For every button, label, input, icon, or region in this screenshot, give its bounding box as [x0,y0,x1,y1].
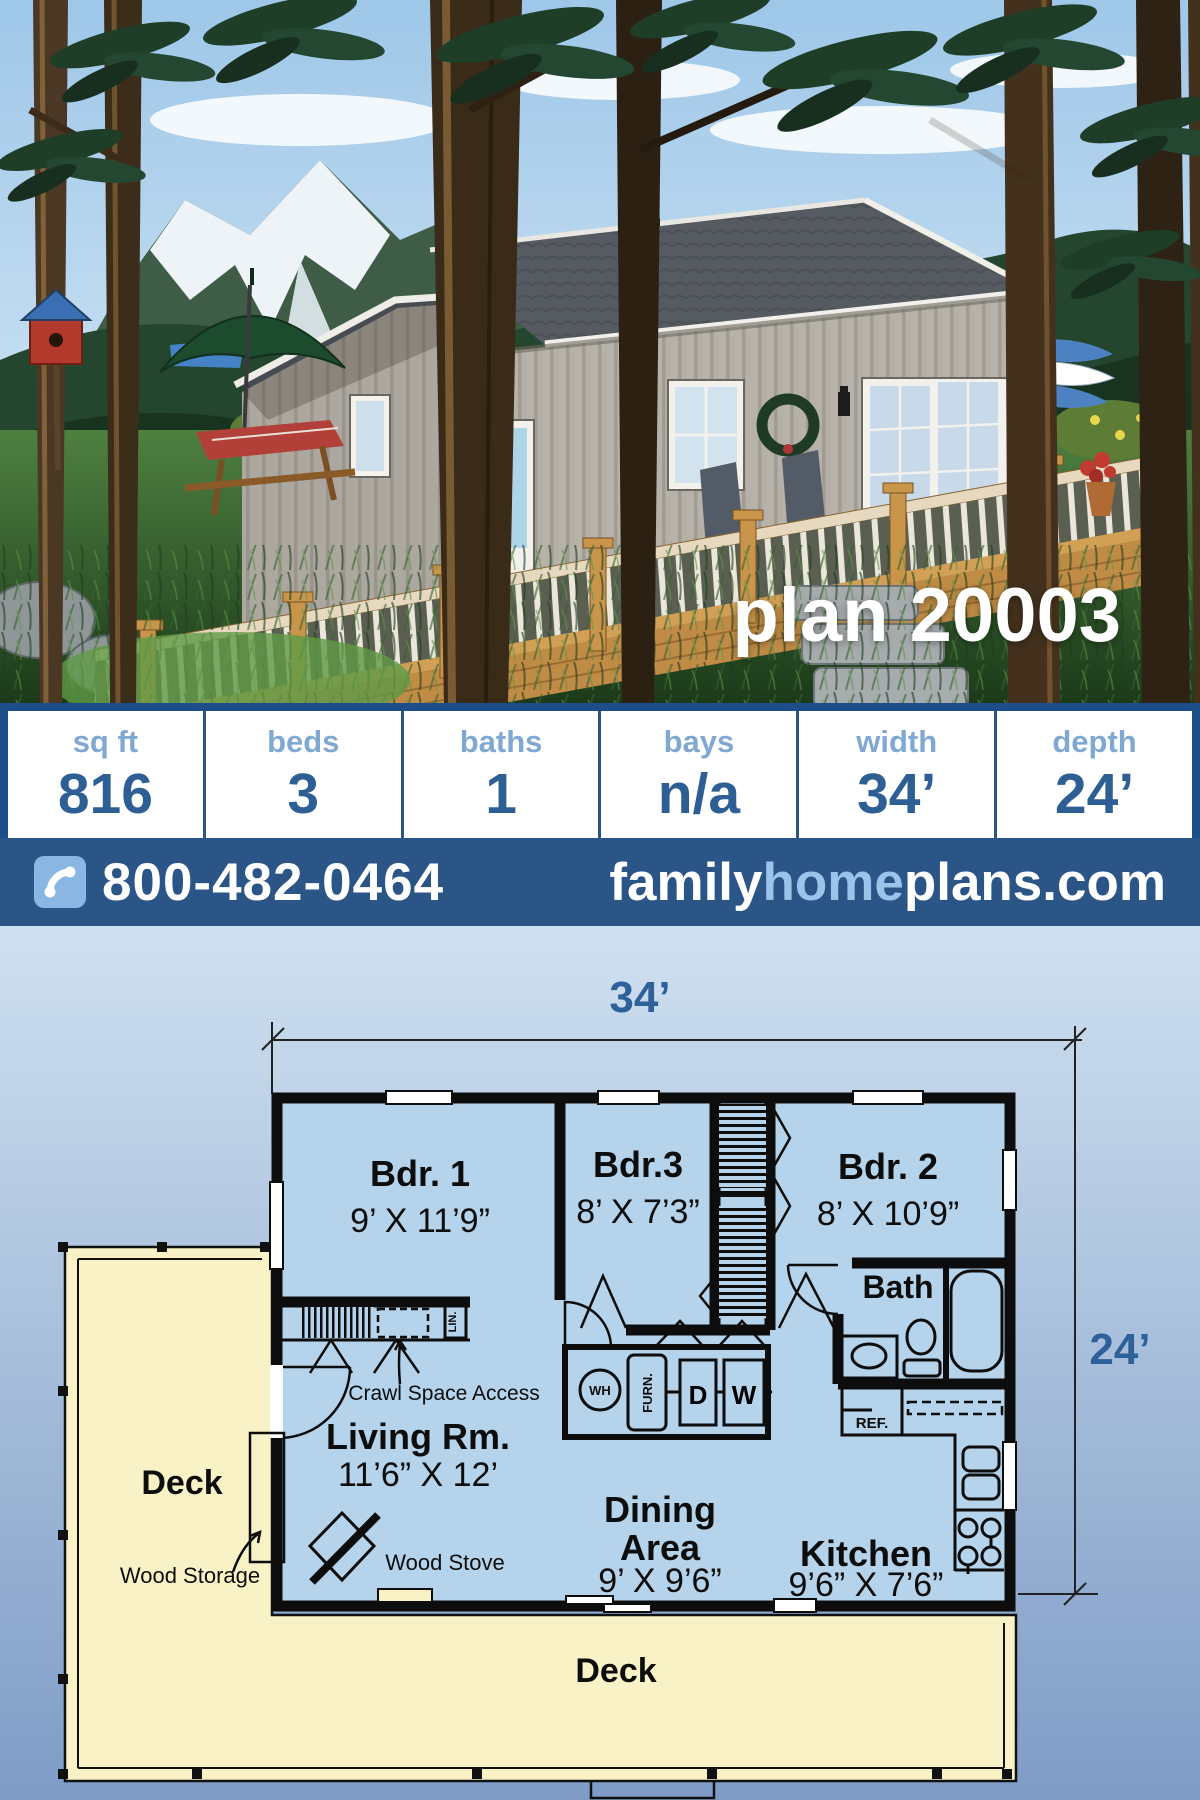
stat-value: 816 [58,766,153,823]
gable-window [350,395,390,477]
contact-bar: 800-482-0464 familyhomeplans.com [0,838,1200,926]
stat-width: width 34’ [799,711,997,838]
water-heater-label: WH [589,1383,611,1398]
stat-value: n/a [658,766,740,823]
dryer-label: D [689,1380,708,1410]
bdr3-size: 8’ X 7’3” [576,1193,699,1231]
stat-label: bays [664,726,735,757]
house-plan-pin: plan 20003 sq ft 816 beds 3 baths 1 bays… [0,0,1200,1800]
phone-block[interactable]: 800-482-0464 [34,856,444,909]
living-size: 11’6” X 12’ [338,1456,498,1494]
floor-plan-drawing: 34’ 24’ [0,926,1200,1800]
wood-storage-label: Wood Storage [120,1563,260,1588]
stat-value: 1 [485,766,517,823]
phone-number[interactable]: 800-482-0464 [102,856,444,909]
stat-bays: bays n/a [601,711,799,838]
bdr2-label: Bdr. 2 [838,1146,938,1187]
depth-dimension: 24’ [1089,1325,1150,1374]
stat-label: baths [460,726,543,757]
linen-label: LIN. [447,1312,459,1333]
furnace-label: FURN. [640,1373,655,1413]
stat-beds: beds 3 [206,711,404,838]
deck-left-label: Deck [141,1464,222,1502]
stat-label: width [856,726,937,757]
crawl-space-label: Crawl Space Access [348,1382,539,1405]
stat-label: sq ft [73,726,138,757]
plan-number-title: plan 20003 [732,578,1121,654]
bdr2-size: 8’ X 10’9” [817,1195,959,1233]
bdr1-label: Bdr. 1 [370,1153,470,1194]
stat-baths: baths 1 [404,711,602,838]
washer-label: W [732,1380,757,1410]
website-family: family [609,853,762,912]
stat-label: depth [1052,726,1136,757]
living-label: Living Rm. [326,1416,510,1457]
bdr3-label: Bdr.3 [593,1144,683,1185]
bath-label: Bath [862,1269,933,1305]
stat-value: 34’ [857,766,936,823]
stats-bar: sq ft 816 beds 3 baths 1 bays n/a width … [0,703,1200,838]
bdr1-size: 9’ X 11’9” [350,1202,490,1240]
dining-label-line1: Dining [604,1489,716,1530]
dining-size: 9’ X 9’6” [598,1562,721,1600]
kitchen-size: 9’6” X 7’6” [789,1566,944,1604]
website-home: home [763,853,904,912]
refrigerator-label: REF. [856,1415,889,1432]
stat-depth: depth 24’ [997,711,1192,838]
stat-value: 3 [287,766,319,823]
floor-plan-section: 34’ 24’ [0,926,1200,1800]
phone-icon [34,856,86,908]
stat-value: 24’ [1055,766,1134,823]
width-dimension: 34’ [609,973,670,1022]
wood-stove-label: Wood Stove [385,1550,504,1575]
stat-sqft: sq ft 816 [8,711,206,838]
website-plans: plans.com [904,853,1166,912]
cabin-illustration: plan 20003 [0,0,1200,703]
deck-bottom-label: Deck [575,1652,656,1690]
stat-label: beds [267,726,339,757]
website-link[interactable]: familyhomeplans.com [609,856,1166,909]
